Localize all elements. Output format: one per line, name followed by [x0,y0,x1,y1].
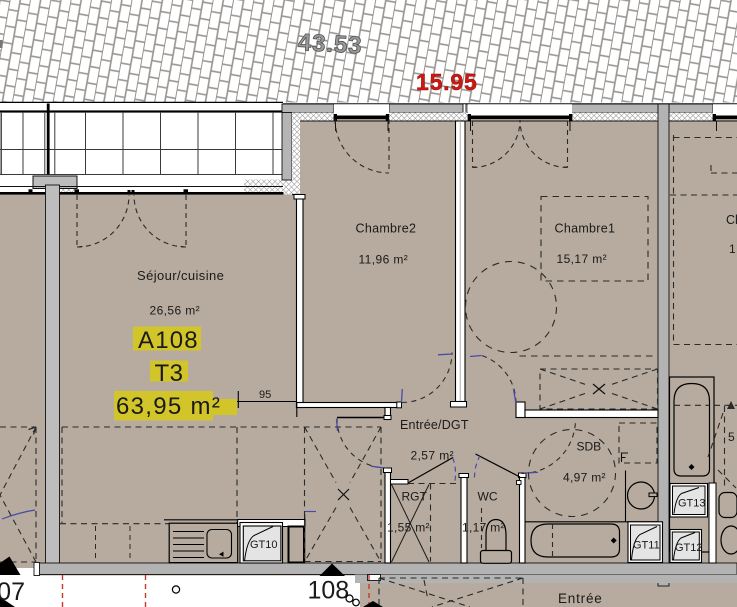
svg-text:43.53: 43.53 [297,29,363,59]
svg-text:RGT: RGT [402,490,428,504]
svg-text:GT10: GT10 [250,539,278,551]
svg-text:GT13: GT13 [678,498,706,510]
svg-text:15.95: 15.95 [416,69,478,95]
svg-text:Chambre1: Chambre1 [555,222,616,236]
svg-text:5: 5 [728,430,735,444]
svg-text:SDB: SDB [577,440,602,454]
svg-text:95: 95 [259,389,271,401]
svg-text:4,97 m²: 4,97 m² [563,471,606,485]
svg-text:GT11: GT11 [633,540,660,552]
svg-text:11,96 m²: 11,96 m² [359,253,409,267]
svg-text:Chambre2: Chambre2 [356,222,417,236]
svg-text:WC: WC [478,490,498,504]
svg-text:26,56 m²: 26,56 m² [150,304,201,318]
svg-text:A108: A108 [138,327,199,354]
svg-text:T3: T3 [155,360,184,387]
svg-text:107: 107 [0,578,25,606]
svg-text:1,55 m²: 1,55 m² [387,521,430,535]
svg-text:Séjour/cuisine: Séjour/cuisine [137,268,224,283]
svg-text:1,17 m²: 1,17 m² [462,521,505,535]
svg-text:Ch: Ch [726,213,737,227]
svg-text:2,57 m²: 2,57 m² [411,449,454,463]
svg-text:108: 108 [308,577,350,605]
svg-text:GT12: GT12 [675,542,703,554]
svg-text:63,95 m²: 63,95 m² [116,393,221,420]
svg-text:1: 1 [729,242,736,256]
svg-text:15,17 m²: 15,17 m² [557,252,608,266]
svg-text:Entrée/DGT: Entrée/DGT [400,418,469,432]
svg-text:Entrée: Entrée [558,591,603,606]
